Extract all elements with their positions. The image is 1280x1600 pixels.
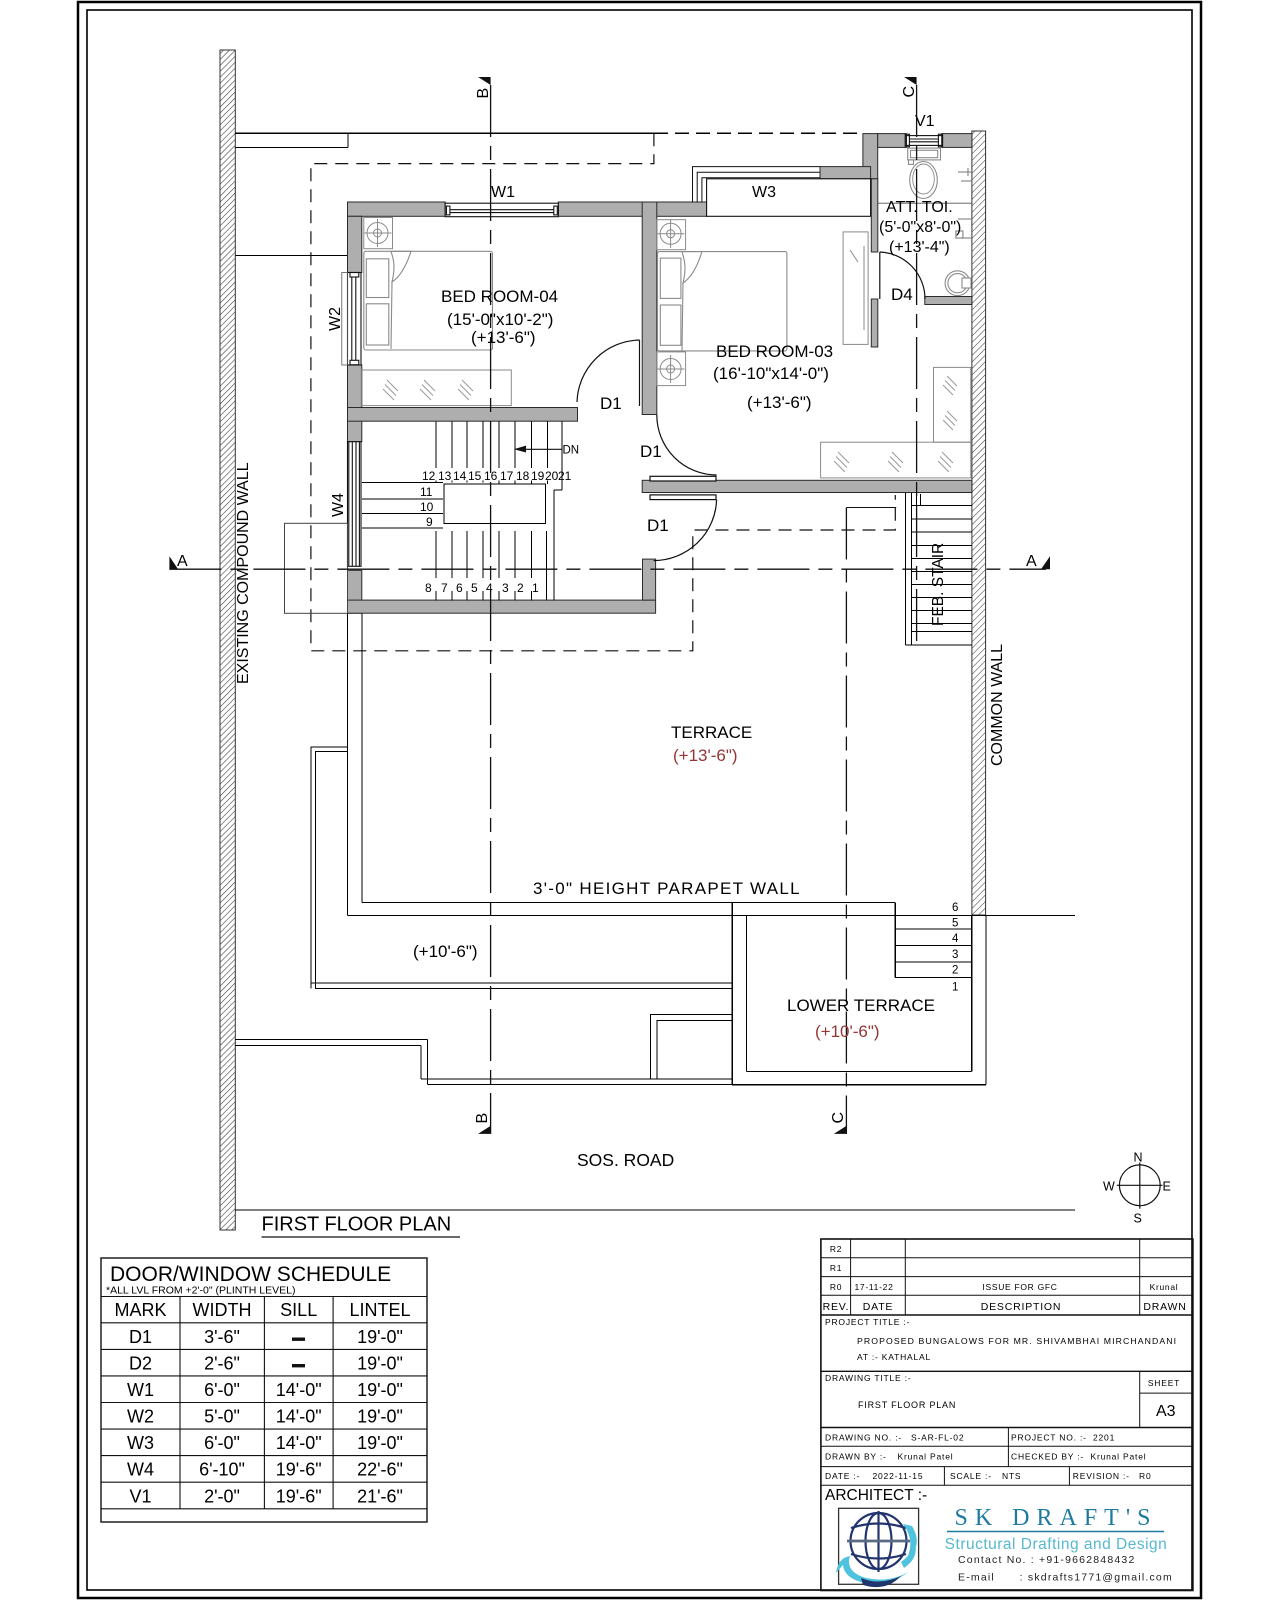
svg-text:(+13'-6"): (+13'-6") — [747, 393, 812, 412]
svg-text:WIDTH: WIDTH — [193, 1300, 252, 1320]
svg-text:4: 4 — [952, 933, 959, 945]
svg-text:W2: W2 — [327, 307, 344, 331]
svg-text:6: 6 — [952, 902, 958, 914]
svg-text:10: 10 — [420, 500, 434, 514]
svg-text:PROJECT TITLE :-: PROJECT TITLE :- — [825, 1317, 910, 1327]
svg-text:DRAWN: DRAWN — [1143, 1301, 1186, 1313]
svg-text:A: A — [177, 553, 188, 570]
svg-text:Krunal: Krunal — [1150, 1282, 1179, 1292]
svg-text:19'-0": 19'-0" — [357, 1327, 403, 1347]
svg-text:19: 19 — [531, 469, 545, 483]
svg-text:2022-11-15: 2022-11-15 — [873, 1471, 924, 1481]
svg-text:3'-0" HEIGHT PARAPET WALL: 3'-0" HEIGHT PARAPET WALL — [533, 879, 801, 898]
svg-text:17: 17 — [500, 469, 514, 483]
svg-text:W3: W3 — [127, 1433, 154, 1453]
svg-text:5: 5 — [952, 918, 958, 930]
svg-text:FEB. STAIR: FEB. STAIR — [930, 543, 947, 626]
svg-text:19'-0": 19'-0" — [357, 1354, 403, 1374]
svg-text:DESCRIPTION: DESCRIPTION — [981, 1301, 1062, 1313]
svg-text:(15'-0"x10'-2"): (15'-0"x10'-2") — [447, 310, 553, 329]
svg-text:DOOR/WINDOW SCHEDULE: DOOR/WINDOW SCHEDULE — [110, 1263, 391, 1286]
svg-text:SHEET: SHEET — [1148, 1378, 1180, 1388]
svg-text:COMMON WALL: COMMON WALL — [989, 644, 1006, 766]
svg-text:19'-0": 19'-0" — [357, 1407, 403, 1427]
svg-text:(+13'-6"): (+13'-6") — [673, 746, 738, 765]
svg-text:DRAWING NO. :-: DRAWING NO. :- — [825, 1433, 902, 1443]
svg-text:B: B — [474, 1113, 491, 1124]
svg-text:NTS: NTS — [1002, 1471, 1021, 1481]
svg-text:R0: R0 — [1139, 1471, 1151, 1481]
svg-text:W4: W4 — [330, 493, 347, 517]
svg-text:2: 2 — [952, 965, 958, 977]
svg-text:1: 1 — [952, 982, 958, 994]
svg-text:2: 2 — [517, 581, 524, 595]
svg-text:14'-0": 14'-0" — [276, 1380, 322, 1400]
svg-text:D1: D1 — [600, 394, 622, 413]
svg-text:R1: R1 — [830, 1263, 842, 1273]
svg-text:19'-6": 19'-6" — [276, 1460, 322, 1480]
svg-text:N: N — [1134, 1151, 1143, 1165]
svg-text:REVISION :-: REVISION :- — [1073, 1471, 1130, 1481]
svg-text:6'-0": 6'-0" — [204, 1433, 240, 1453]
svg-text:E: E — [1163, 1180, 1171, 1194]
svg-text:3'-6": 3'-6" — [204, 1327, 240, 1347]
svg-text:4: 4 — [486, 581, 493, 595]
svg-text:D1: D1 — [647, 516, 669, 535]
svg-text:6'-0": 6'-0" — [204, 1380, 240, 1400]
svg-text:Structural Drafting and Design: Structural Drafting and Design — [945, 1536, 1168, 1553]
svg-text:MARK: MARK — [114, 1300, 166, 1320]
svg-text:C: C — [830, 1112, 847, 1124]
svg-text:5: 5 — [471, 581, 478, 595]
svg-text:SOS. ROAD: SOS. ROAD — [577, 1150, 674, 1170]
svg-text:DATE: DATE — [863, 1301, 893, 1313]
svg-text:2'-6": 2'-6" — [204, 1354, 240, 1374]
svg-text:W1: W1 — [127, 1380, 154, 1400]
svg-text:2'-0": 2'-0" — [204, 1486, 240, 1506]
svg-text:6'-10": 6'-10" — [199, 1460, 245, 1480]
svg-text:3: 3 — [952, 949, 958, 961]
svg-text:DRAWN BY :-: DRAWN BY :- — [825, 1452, 887, 1462]
svg-text:CHECKED BY :-: CHECKED BY :- — [1011, 1452, 1084, 1462]
svg-text:D2: D2 — [129, 1354, 152, 1374]
svg-text:(5'-0"x8'-0"): (5'-0"x8'-0") — [879, 219, 961, 236]
svg-text:13: 13 — [438, 469, 452, 483]
svg-text:*ALL LVL FROM +2'-0" (PLINTH L: *ALL LVL FROM +2'-0" (PLINTH LEVEL) — [106, 1285, 295, 1297]
svg-text:8: 8 — [425, 581, 432, 595]
svg-text:ISSUE FOR GFC: ISSUE FOR GFC — [982, 1282, 1057, 1292]
svg-text:DATE :-: DATE :- — [825, 1471, 860, 1481]
svg-text:Krunal Patel: Krunal Patel — [898, 1452, 954, 1462]
svg-text:6: 6 — [456, 581, 463, 595]
svg-text:SILL: SILL — [280, 1300, 317, 1320]
svg-text:FIRST FLOOR PLAN: FIRST FLOOR PLAN — [262, 1214, 452, 1236]
svg-text:E-mail : skdrafts1771@gma: E-mail : skdrafts1771@gmail.com — [958, 1572, 1173, 1584]
svg-text:SK DRAFT'S: SK DRAFT'S — [954, 1505, 1157, 1531]
svg-text:ATT. TOI.: ATT. TOI. — [886, 199, 953, 216]
svg-text:14'-0": 14'-0" — [276, 1407, 322, 1427]
svg-text:FIRST FLOOR PLAN: FIRST FLOOR PLAN — [858, 1400, 956, 1410]
svg-text:5'-0": 5'-0" — [204, 1407, 240, 1427]
svg-text:R2: R2 — [830, 1244, 842, 1254]
svg-text:7: 7 — [441, 581, 448, 595]
svg-text:18: 18 — [516, 469, 530, 483]
svg-text:D4: D4 — [891, 285, 913, 304]
svg-text:(+13'-4"): (+13'-4") — [889, 239, 950, 256]
svg-text:SCALE :-: SCALE :- — [950, 1471, 992, 1481]
svg-text:21: 21 — [558, 469, 572, 483]
svg-text:19'-0": 19'-0" — [357, 1380, 403, 1400]
svg-text:15: 15 — [468, 469, 482, 483]
svg-text:D1: D1 — [129, 1327, 152, 1347]
svg-text:Contact No. : +91-9662848432: Contact No. : +91-9662848432 — [958, 1554, 1136, 1566]
svg-text:ARCHITECT :-: ARCHITECT :- — [825, 1487, 927, 1504]
svg-text:14'-0": 14'-0" — [276, 1433, 322, 1453]
svg-text:9: 9 — [426, 515, 433, 529]
svg-text:W2: W2 — [127, 1407, 154, 1427]
svg-text:Krunal Patel: Krunal Patel — [1091, 1452, 1147, 1462]
svg-text:21'-6": 21'-6" — [357, 1486, 403, 1506]
svg-text:V1: V1 — [915, 113, 935, 130]
svg-text:PROJECT NO. :-: PROJECT NO. :- — [1011, 1433, 1087, 1443]
svg-text:W4: W4 — [127, 1460, 154, 1480]
svg-text:A: A — [1026, 553, 1037, 570]
svg-text:PROPOSED BUNGALOWS FOR MR. SHI: PROPOSED BUNGALOWS FOR MR. SHIVAMBHAI MI… — [857, 1336, 1177, 1346]
svg-text:20: 20 — [545, 469, 559, 483]
svg-text:(+10'-6"): (+10'-6") — [413, 942, 478, 961]
svg-text:LOWER TERRACE: LOWER TERRACE — [787, 996, 935, 1015]
svg-text:2201: 2201 — [1093, 1433, 1115, 1443]
svg-text:22'-6": 22'-6" — [357, 1460, 403, 1480]
svg-text:TERRACE: TERRACE — [671, 723, 752, 742]
svg-text:A3: A3 — [1156, 1403, 1176, 1420]
svg-text:(16'-10"x14'-0"): (16'-10"x14'-0") — [713, 364, 829, 383]
svg-text:DN: DN — [563, 445, 580, 457]
svg-text:C: C — [901, 86, 918, 98]
svg-text:V1: V1 — [129, 1486, 151, 1506]
svg-text:17-11-22: 17-11-22 — [855, 1282, 894, 1292]
svg-text:1: 1 — [532, 581, 539, 595]
svg-text:3: 3 — [502, 581, 509, 595]
svg-text:LINTEL: LINTEL — [349, 1300, 410, 1320]
svg-text:AT :- KATHALAL: AT :- KATHALAL — [857, 1352, 931, 1362]
svg-text:12: 12 — [422, 469, 436, 483]
svg-text:14: 14 — [453, 469, 467, 483]
svg-text:W: W — [1103, 1180, 1115, 1194]
svg-text:19'-6": 19'-6" — [276, 1486, 322, 1506]
svg-text:BED ROOM-04: BED ROOM-04 — [441, 287, 558, 306]
svg-text:EXISTING COMPOUND WALL: EXISTING COMPOUND WALL — [235, 462, 252, 684]
svg-text:S-AR-FL-02: S-AR-FL-02 — [911, 1433, 964, 1443]
svg-text:D1: D1 — [640, 442, 662, 461]
svg-text:W1: W1 — [491, 184, 515, 201]
svg-text:S: S — [1134, 1212, 1142, 1226]
svg-text:W3: W3 — [752, 184, 776, 201]
svg-text:(+10'-6"): (+10'-6") — [815, 1022, 880, 1041]
svg-text:19'-0": 19'-0" — [357, 1433, 403, 1453]
svg-text:R0: R0 — [830, 1282, 842, 1292]
svg-text:REV.: REV. — [823, 1301, 850, 1313]
svg-text:DRAWING TITLE :-: DRAWING TITLE :- — [825, 1373, 911, 1383]
svg-text:11: 11 — [420, 485, 433, 499]
svg-text:(+13'-6"): (+13'-6") — [471, 328, 536, 347]
svg-text:B: B — [475, 88, 492, 99]
svg-text:BED ROOM-03: BED ROOM-03 — [716, 342, 833, 361]
